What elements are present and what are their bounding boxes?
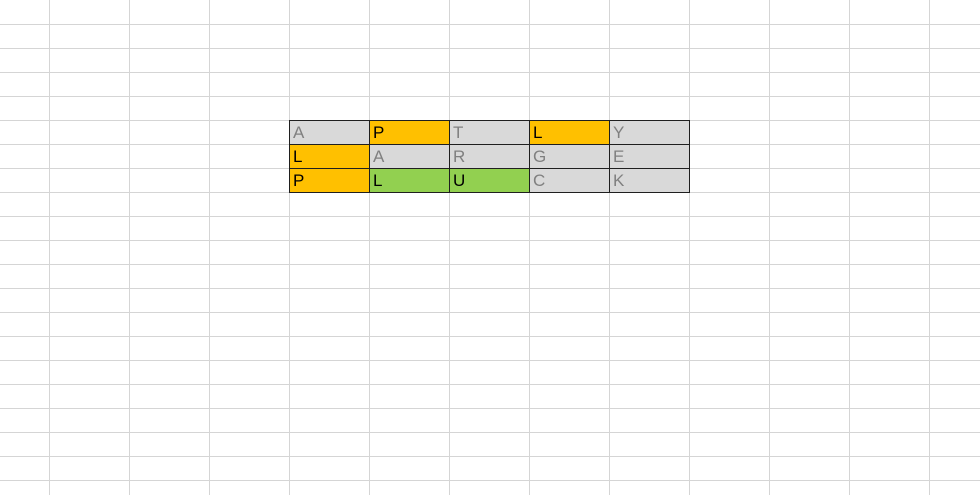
- letter-cell[interactable]: U: [450, 169, 529, 192]
- letter-cell[interactable]: L: [370, 169, 449, 192]
- letter-cell[interactable]: C: [530, 169, 609, 192]
- letter-cell[interactable]: P: [290, 169, 369, 192]
- letter-cell[interactable]: Y: [610, 121, 689, 144]
- letter-cell[interactable]: E: [610, 145, 689, 168]
- letter-cell[interactable]: K: [610, 169, 689, 192]
- letter-cell[interactable]: G: [530, 145, 609, 168]
- letter-cell[interactable]: R: [450, 145, 529, 168]
- letter-cell[interactable]: A: [370, 145, 449, 168]
- letter-cell[interactable]: L: [290, 145, 369, 168]
- spreadsheet-sheet[interactable]: APTLYLARGEPLUCK: [0, 0, 980, 495]
- letter-cell[interactable]: L: [530, 121, 609, 144]
- letter-cell[interactable]: P: [370, 121, 449, 144]
- puzzle-grid: APTLYLARGEPLUCK: [289, 120, 690, 193]
- sheet-gridlines: [0, 0, 980, 495]
- letter-cell[interactable]: T: [450, 121, 529, 144]
- letter-cell[interactable]: A: [290, 121, 369, 144]
